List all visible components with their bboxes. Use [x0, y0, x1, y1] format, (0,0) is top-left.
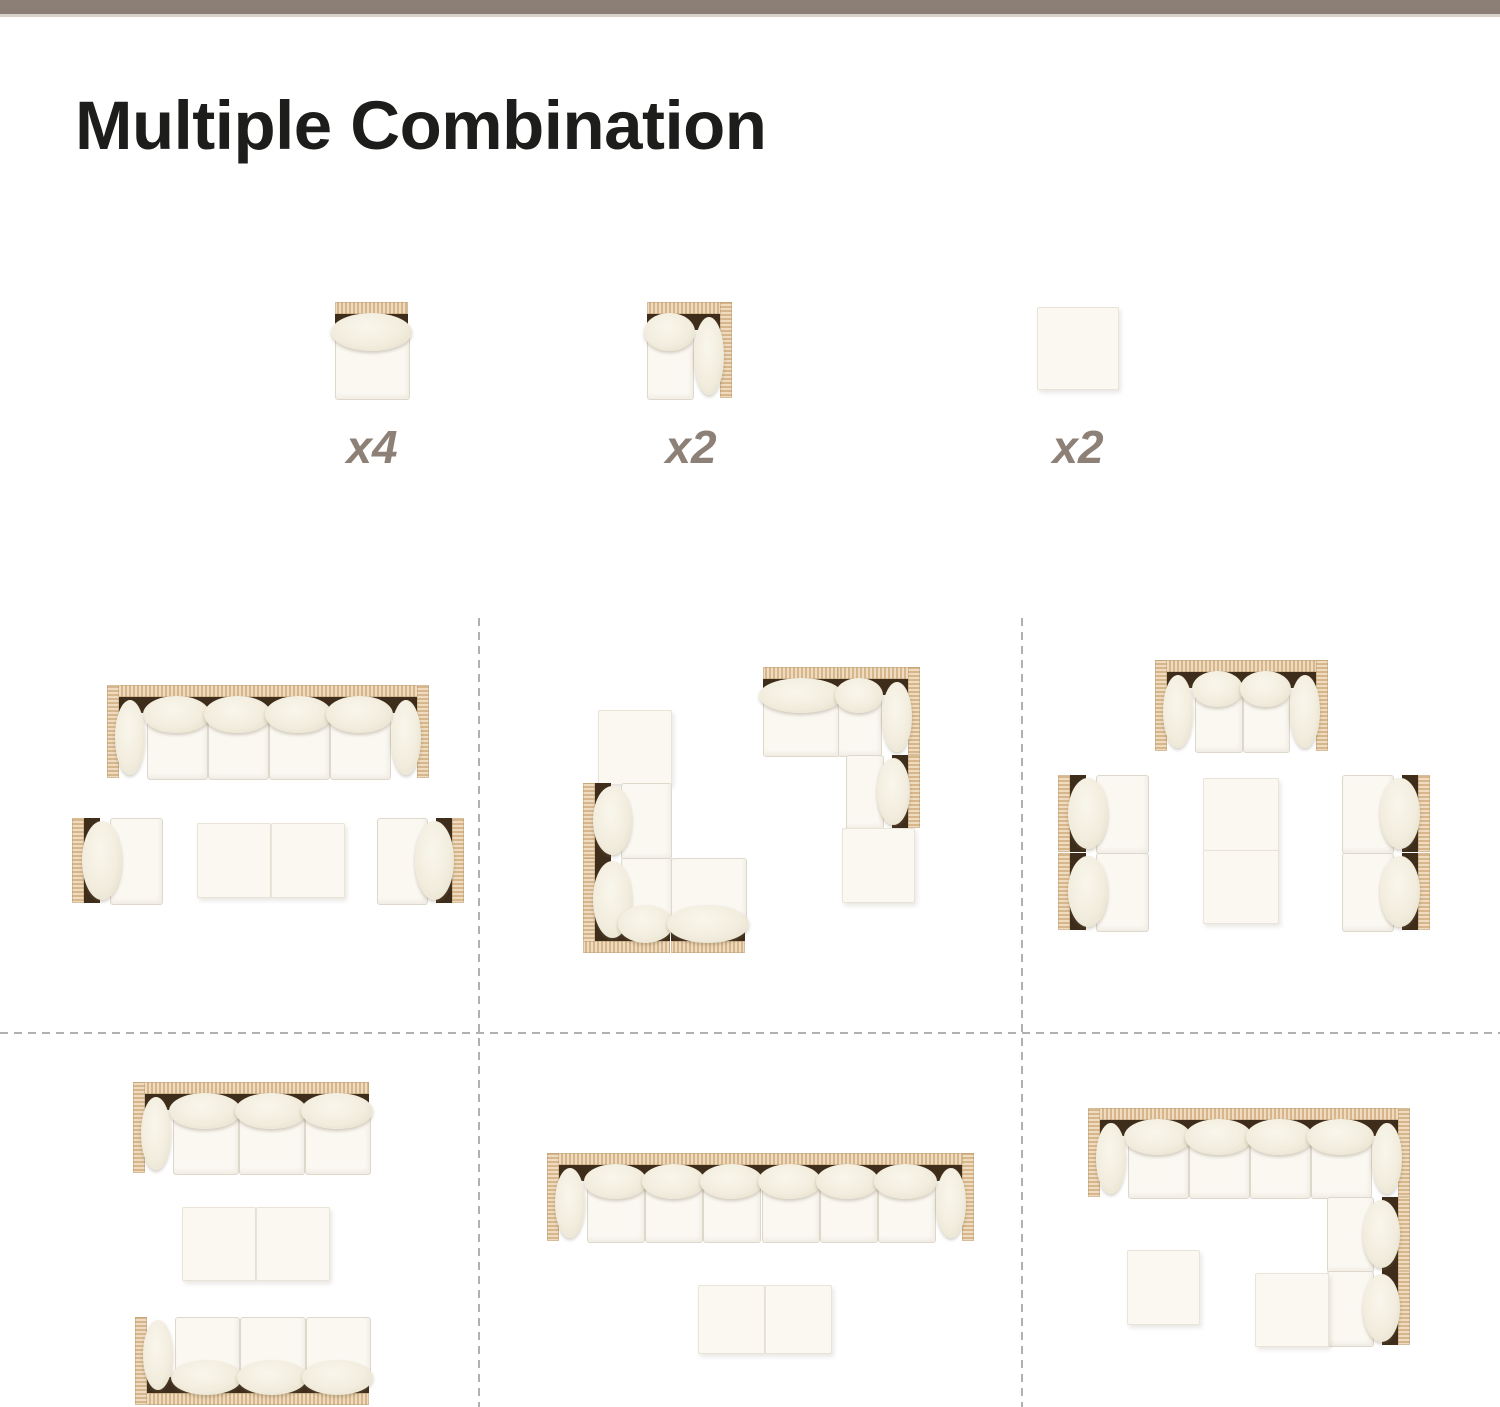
sofa-4-seat-corner — [1088, 1108, 1410, 1197]
chair-facing-left — [1327, 1197, 1410, 1271]
arm-bolster-cushion — [1096, 1123, 1126, 1194]
ottoman-module — [1255, 1273, 1329, 1347]
back-cushion — [1307, 1119, 1373, 1155]
arm-bolster-cushion — [1372, 1123, 1402, 1194]
back-cushion — [1363, 1200, 1400, 1268]
chair-facing-left — [1327, 1271, 1410, 1345]
back-cushion — [1246, 1119, 1312, 1155]
ottoman-module — [1127, 1250, 1200, 1325]
back-cushion — [1185, 1119, 1251, 1155]
furniture-stage — [0, 0, 1500, 1407]
combo-6 — [0, 0, 1500, 1407]
back-cushion — [1124, 1119, 1190, 1155]
page: Multiple Combination x4 x2 x2 — [0, 0, 1500, 1407]
back-cushion — [1363, 1274, 1400, 1342]
wicker-frame — [1088, 1108, 1410, 1120]
